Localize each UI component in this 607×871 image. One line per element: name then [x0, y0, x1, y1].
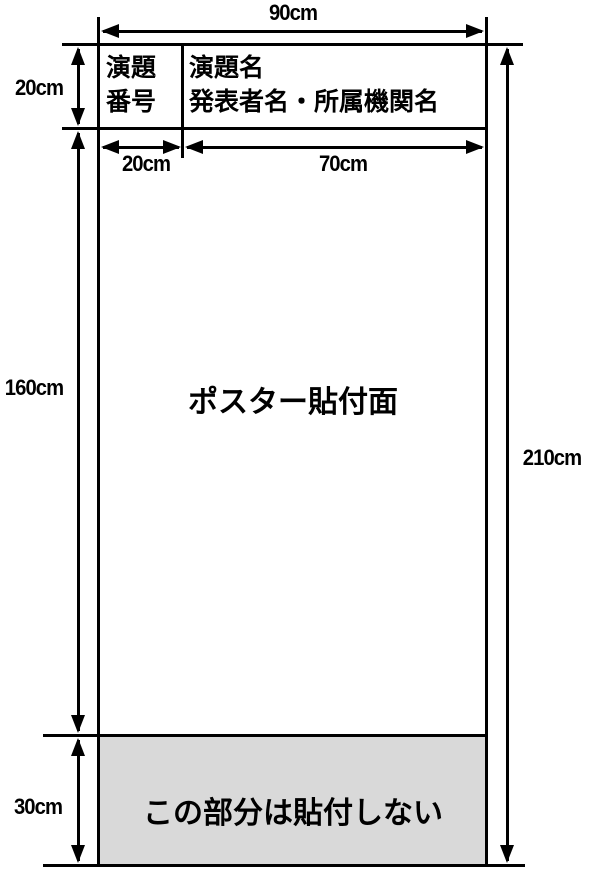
- arrowhead-down-icon: [500, 845, 514, 863]
- header-20cm-arrow: [69, 47, 87, 126]
- arrow-line: [77, 133, 80, 731]
- arrowhead-up-icon: [71, 738, 85, 756]
- arrowhead-left-icon: [185, 140, 203, 154]
- header-cell-divider: [181, 43, 184, 158]
- no-paste-boundary-line: [43, 734, 488, 737]
- arrowhead-up-icon: [71, 47, 85, 65]
- header-title-cell-label: 演題名 発表者名・所属機関名: [189, 51, 485, 119]
- no-paste-area-label: この部分は貼付しない: [100, 788, 486, 832]
- board-right-edge: [485, 17, 488, 867]
- arrow-line: [506, 49, 509, 861]
- arrowhead-right-icon: [466, 140, 484, 154]
- arrowhead-down-icon: [71, 715, 85, 733]
- poster-area-label: ポスター貼付面: [100, 377, 486, 421]
- arrowhead-down-icon: [71, 108, 85, 126]
- total-210cm-arrow: [498, 47, 516, 863]
- dim-label-title-cell-width: 70cm: [313, 151, 374, 177]
- header-number-cell-label: 演題 番号: [106, 51, 180, 119]
- arrow-line: [187, 146, 482, 149]
- arrowhead-left-icon: [101, 24, 119, 38]
- header-bottom-line: [62, 127, 488, 130]
- dim-label-header-height: 20cm: [9, 75, 70, 101]
- dim-label-number-cell-width: 20cm: [116, 151, 177, 177]
- arrow-line: [103, 30, 482, 33]
- poster-board-diagram: 90cm 20cm 20cm 70cm 160cm 30cm 210cm 演題 …: [0, 0, 607, 871]
- board-left-edge: [97, 17, 100, 867]
- board-top-line: [62, 43, 523, 46]
- board-bottom-line: [43, 864, 525, 867]
- arrowhead-up-icon: [71, 131, 85, 149]
- arrowhead-right-icon: [466, 24, 484, 38]
- poster-160cm-arrow: [69, 131, 87, 733]
- dim-label-total-width: 90cm: [263, 0, 324, 26]
- arrowhead-down-icon: [71, 845, 85, 863]
- arrow-line: [77, 740, 80, 861]
- no-paste-30cm-arrow: [69, 738, 87, 863]
- arrowhead-up-icon: [500, 47, 514, 65]
- dim-label-poster-height: 160cm: [3, 375, 66, 401]
- dim-label-total-height: 210cm: [515, 445, 589, 471]
- dim-label-no-paste-height: 30cm: [10, 794, 65, 820]
